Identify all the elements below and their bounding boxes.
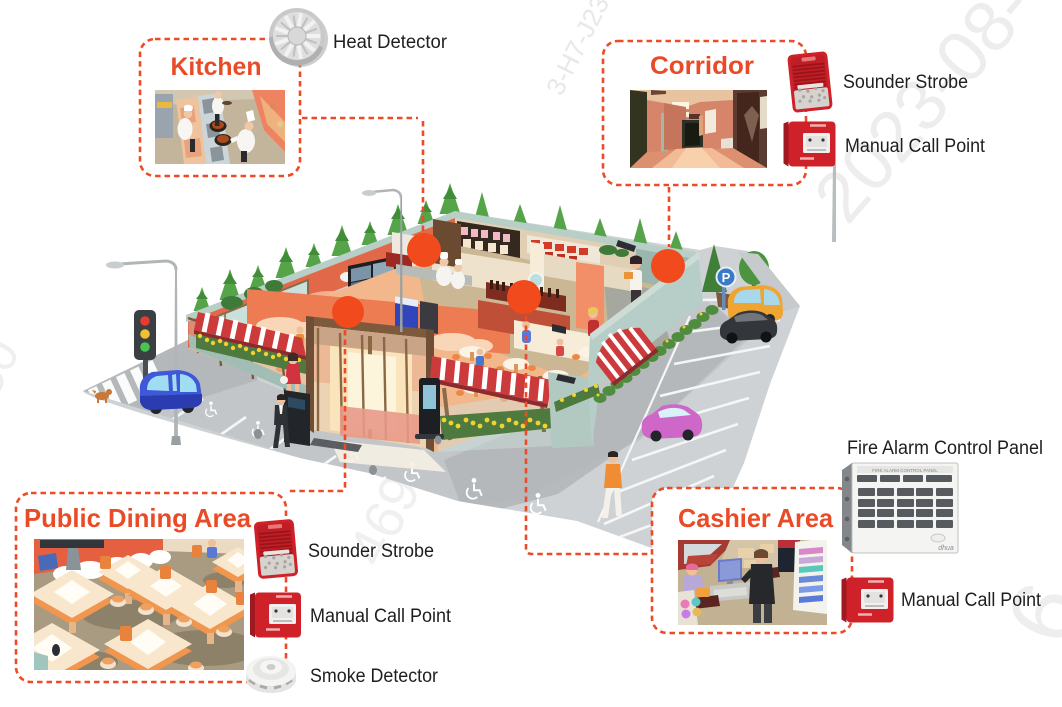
svg-text:Public Dining Area: Public Dining Area	[24, 503, 252, 533]
svg-text:Smoke Detector: Smoke Detector	[310, 666, 439, 687]
svg-text:dhua: dhua	[938, 545, 954, 552]
svg-text:Cashier Area: Cashier Area	[678, 503, 834, 533]
svg-text:Sounder Strobe: Sounder Strobe	[308, 541, 434, 562]
svg-text:Manual Call Point: Manual Call Point	[901, 590, 1042, 611]
svg-text:FIRE ALARM CONTROL PANEL: FIRE ALARM CONTROL PANEL	[872, 468, 938, 473]
svg-text:P: P	[722, 270, 731, 285]
svg-text:Heat Detector: Heat Detector	[333, 32, 448, 53]
svg-text:Sounder Strobe: Sounder Strobe	[843, 72, 968, 93]
svg-text:Manual Call Point: Manual Call Point	[845, 136, 986, 157]
svg-text:Fire Alarm Control Panel: Fire Alarm Control Panel	[847, 438, 1043, 459]
svg-text:Corridor: Corridor	[650, 52, 754, 80]
svg-text:Manual Call Point: Manual Call Point	[310, 606, 452, 627]
svg-text:Kitchen: Kitchen	[171, 53, 262, 81]
